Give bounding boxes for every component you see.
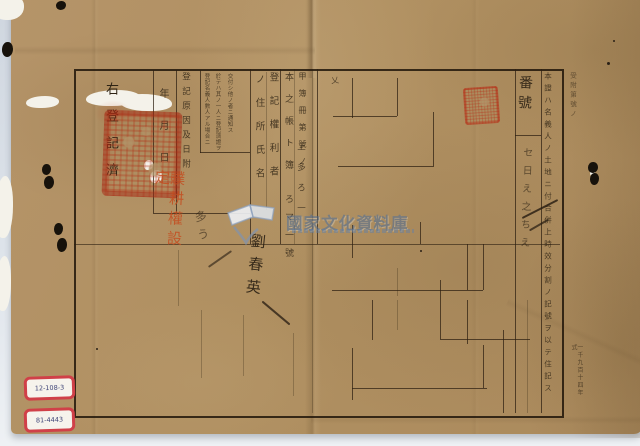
grid-line: [352, 225, 353, 258]
grid-line: [266, 72, 267, 210]
handwritten-number-marks: ろマ一號: [283, 194, 292, 274]
grid-line: [200, 70, 201, 153]
grid-line: [527, 300, 528, 413]
margin-receipt-number-text: 受附第號ノ: [569, 72, 576, 132]
grid-line: [338, 166, 433, 167]
form-edition-text: 一千九百十四年式: [570, 344, 582, 402]
handwritten-column-marks: 上多ろ一: [296, 142, 305, 254]
grid-line: [74, 244, 560, 245]
grid-line: [332, 290, 483, 291]
grid-line: [352, 388, 487, 389]
grid-line: [372, 300, 373, 340]
grid-line: [503, 330, 504, 413]
fold-crease: [307, 0, 317, 78]
grid-line: [293, 333, 294, 396]
grid-line: [483, 345, 484, 388]
archive-label-1-text: 12-108-3: [35, 383, 65, 392]
side-notes-column: 本證ハ名義人ノ土地ニ付合併上時效分割ノ記號ヲ以テ住記ス: [544, 72, 552, 407]
handwritten-cell-header: 番號: [516, 75, 533, 131]
speck: [613, 40, 615, 42]
scanned-document-page: 右登記濟 年月日 登記原因及日附 登記名義人數人アル場合ニ 於テハ其ノ一人ニ登記…: [0, 0, 640, 446]
grid-line: [541, 69, 542, 413]
tear-patch: [26, 96, 59, 108]
tenancy-right-stamp-text: 贌耕權設定: [149, 169, 184, 268]
grid-line: [352, 78, 353, 118]
grid-line: [397, 300, 398, 330]
grid-line: [352, 348, 353, 400]
archive-label-2-text: 81-4443: [36, 416, 63, 425]
archive-label-1: 12-108-3: [24, 375, 76, 401]
grid-line: [294, 69, 295, 244]
grid-line: [333, 116, 397, 117]
note-column-1: 登記名義人數人アル場合ニ: [203, 73, 209, 151]
speck: [607, 62, 610, 65]
grid-line: [201, 310, 202, 378]
grid-line: [420, 222, 421, 244]
receipt-stamp: [463, 86, 500, 125]
grid-line: [200, 152, 250, 153]
handwritten-check-mark: 乂: [331, 75, 340, 87]
grid-line: [515, 135, 541, 136]
grid-line: [397, 268, 398, 296]
grid-line: [280, 69, 281, 244]
fold-crease: [15, 46, 315, 55]
grid-line: [483, 244, 484, 290]
grid-line: [312, 69, 313, 413]
archive-label-2: 81-4443: [24, 407, 76, 433]
grid-line: [317, 69, 318, 244]
holder-name-column-label: 登記權利者: [268, 72, 278, 207]
ledger-column-label: 本之帳ト簿: [283, 72, 292, 202]
holder-address-column-label: ノ住所氏名: [254, 74, 264, 209]
note-column-3: 交付シ他ノ者ニ通知ス: [226, 73, 232, 151]
note-column-2: 於テハ其ノ一人ニ登記濟證ヲ: [214, 73, 220, 151]
grid-line: [397, 78, 398, 116]
grid-line: [467, 244, 468, 290]
grid-line: [250, 69, 251, 244]
grid-line: [433, 112, 434, 167]
grid-line: [243, 315, 244, 376]
grid-line: [440, 280, 441, 339]
grid-line: [467, 300, 468, 344]
grid-line: [440, 339, 530, 340]
